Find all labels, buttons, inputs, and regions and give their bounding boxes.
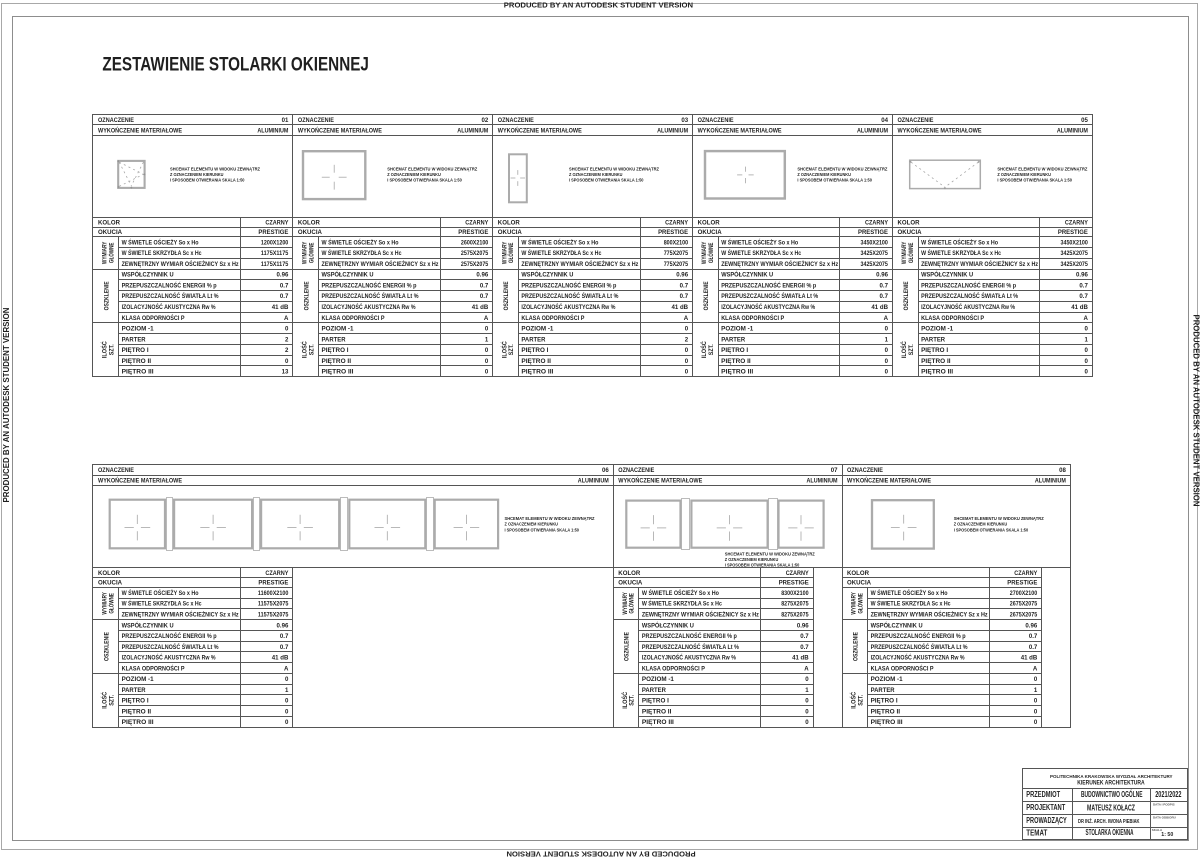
svg-text:1: 50: 1: 50 <box>1161 832 1173 838</box>
svg-text:WYKOŃCZENIE MATERIAŁOWE: WYKOŃCZENIE MATERIAŁOWE <box>298 126 382 134</box>
svg-text:KLASA ODPORNOŚCI P: KLASA ODPORNOŚCI P <box>122 665 185 672</box>
svg-text:1: 1 <box>485 336 489 343</box>
svg-text:POZIOM -1: POZIOM -1 <box>871 676 904 683</box>
svg-text:PARTER: PARTER <box>521 336 546 343</box>
svg-text:IZOLACYJNOŚĆ AKUSTYCZNA Rw %: IZOLACYJNOŚĆ AKUSTYCZNA Rw % <box>322 303 416 311</box>
svg-text:1200X1200: 1200X1200 <box>261 240 289 247</box>
svg-text:KOLOR: KOLOR <box>698 220 721 227</box>
svg-text:0.7: 0.7 <box>1029 644 1038 651</box>
svg-text:PROWADZĄCY: PROWADZĄCY <box>1026 816 1067 825</box>
svg-text:BUDOWNICTWO OGÓLNE: BUDOWNICTWO OGÓLNE <box>1081 790 1143 799</box>
svg-text:PRZEPUSZCZALNOŚĆ ENERGII % p: PRZEPUSZCZALNOŚĆ ENERGII % p <box>642 632 737 640</box>
svg-text:0.96: 0.96 <box>277 622 289 629</box>
svg-text:PRESTIGE: PRESTIGE <box>858 229 888 236</box>
svg-text:PIĘTRO I: PIĘTRO I <box>721 347 748 354</box>
svg-text:3425X2075: 3425X2075 <box>861 261 889 268</box>
svg-text:2575X2075: 2575X2075 <box>461 261 489 268</box>
svg-text:SZT.: SZT. <box>109 344 115 355</box>
svg-text:PIĘTRO II: PIĘTRO II <box>521 358 551 365</box>
svg-text:PROJEKTANT: PROJEKTANT <box>1026 803 1065 812</box>
svg-text:W ŚWIETLE SKRZYDŁA Sc x Hc: W ŚWIETLE SKRZYDŁA Sc x Hc <box>322 250 403 257</box>
svg-text:PIĘTRO I: PIĘTRO I <box>322 347 349 354</box>
svg-text:A: A <box>1033 665 1038 672</box>
svg-text:0.96: 0.96 <box>277 272 289 279</box>
svg-text:PIĘTRO I: PIĘTRO I <box>122 347 149 354</box>
svg-text:PRZEPUSZCZALNOŚĆ ENERGII % p: PRZEPUSZCZALNOŚĆ ENERGII % p <box>721 282 816 290</box>
svg-text:OZNACZENIE: OZNACZENIE <box>498 117 534 124</box>
svg-text:ZEWNĘTRZNY WYMIAR OŚCIEŻNICY S: ZEWNĘTRZNY WYMIAR OŚCIEŻNICY Sz x Hz <box>871 612 988 619</box>
svg-text:Z OZNACZENIEM KIERUNKU: Z OZNACZENIEM KIERUNKU <box>725 557 779 562</box>
svg-text:PIĘTRO I: PIĘTRO I <box>921 347 948 354</box>
svg-text:PIĘTRO II: PIĘTRO II <box>721 358 751 365</box>
svg-text:SHCEMAT ELEMENTU W WIDOKU ZEWN: SHCEMAT ELEMENTU W WIDOKU ZEWNĄTRZ <box>997 166 1087 171</box>
svg-text:PRESTIGE: PRESTIGE <box>1058 229 1088 236</box>
svg-text:OZNACZENIE: OZNACZENIE <box>847 467 883 474</box>
svg-text:1175X1175: 1175X1175 <box>261 250 289 257</box>
svg-text:ILOŚĆ: ILOŚĆ <box>700 341 708 359</box>
svg-text:06: 06 <box>602 467 609 474</box>
svg-text:PRZEPUSZCZALNOŚĆ ŚWIATŁA Lt %: PRZEPUSZCZALNOŚĆ ŚWIATŁA Lt % <box>721 292 819 300</box>
svg-text:W ŚWIETLE OŚCIEŻY So x Ho: W ŚWIETLE OŚCIEŻY So x Ho <box>721 240 798 247</box>
svg-text:Z OZNACZENIEM KIERUNKU: Z OZNACZENIEM KIERUNKU <box>170 172 224 177</box>
svg-text:OKUCIA: OKUCIA <box>98 229 123 236</box>
svg-text:PARTER: PARTER <box>642 687 667 694</box>
svg-text:0.7: 0.7 <box>680 293 689 300</box>
svg-text:0: 0 <box>1034 676 1038 683</box>
svg-text:KIERUNEK ARCHITEKTURA: KIERUNEK ARCHITEKTURA <box>1077 780 1145 787</box>
svg-text:41 dB: 41 dB <box>1071 304 1088 311</box>
svg-text:41 dB: 41 dB <box>792 655 809 662</box>
svg-text:41 dB: 41 dB <box>671 304 688 311</box>
svg-text:WSPÓŁCZYNNIK U: WSPÓŁCZYNNIK U <box>871 621 924 629</box>
svg-text:41 dB: 41 dB <box>871 304 888 311</box>
svg-text:2700X2100: 2700X2100 <box>1010 590 1038 597</box>
svg-text:ILOŚĆ: ILOŚĆ <box>500 341 508 359</box>
svg-text:OZNACZENIE: OZNACZENIE <box>98 117 134 124</box>
svg-text:CZARNY: CZARNY <box>1065 220 1088 227</box>
svg-text:2600X2100: 2600X2100 <box>461 240 489 247</box>
svg-text:SZT.: SZT. <box>709 344 715 355</box>
svg-text:03: 03 <box>681 117 688 124</box>
svg-text:W ŚWIETLE OŚCIEŻY So x Ho: W ŚWIETLE OŚCIEŻY So x Ho <box>122 240 199 247</box>
svg-text:PRZEDMIOT: PRZEDMIOT <box>1026 790 1060 799</box>
svg-text:PIĘTRO I: PIĘTRO I <box>871 698 898 705</box>
svg-text:W ŚWIETLE OŚCIEŻY So x Ho: W ŚWIETLE OŚCIEŻY So x Ho <box>921 240 998 247</box>
svg-text:PIĘTRO III: PIĘTRO III <box>122 369 154 376</box>
svg-text:KLASA ODPORNOŚCI P: KLASA ODPORNOŚCI P <box>521 315 584 322</box>
svg-text:Z OZNACZENIEM KIERUNKU: Z OZNACZENIEM KIERUNKU <box>387 172 441 177</box>
svg-text:0.7: 0.7 <box>800 644 809 651</box>
svg-text:KOLOR: KOLOR <box>618 570 641 577</box>
svg-text:PRZEPUSZCZALNOŚĆ ŚWIATŁA Lt %: PRZEPUSZCZALNOŚĆ ŚWIATŁA Lt % <box>921 292 1019 300</box>
svg-text:WYKOŃCZENIE MATERIAŁOWE: WYKOŃCZENIE MATERIAŁOWE <box>498 126 582 134</box>
svg-text:01: 01 <box>282 117 289 124</box>
svg-text:WYKOŃCZENIE MATERIAŁOWE: WYKOŃCZENIE MATERIAŁOWE <box>98 126 182 134</box>
svg-text:WYMIARY: WYMIARY <box>623 592 629 615</box>
svg-text:W ŚWIETLE SKRZYDŁA Sc x Hc: W ŚWIETLE SKRZYDŁA Sc x Hc <box>921 250 1002 257</box>
svg-text:PRODUCED BY AN AUTODESK STUDEN: PRODUCED BY AN AUTODESK STUDENT VERSION <box>504 0 694 9</box>
svg-text:GŁÓWNE: GŁÓWNE <box>628 593 636 614</box>
svg-text:0.7: 0.7 <box>1079 283 1088 290</box>
svg-text:ALUMINIUM: ALUMINIUM <box>807 478 838 485</box>
svg-text:2575X2075: 2575X2075 <box>461 250 489 257</box>
svg-text:PARTER: PARTER <box>322 336 347 343</box>
svg-text:CZARNY: CZARNY <box>786 570 809 577</box>
svg-text:ZEWNĘTRZNY WYMIAR OŚCIEŻNICY S: ZEWNĘTRZNY WYMIAR OŚCIEŻNICY Sz x Hz <box>642 612 759 619</box>
svg-text:0.7: 0.7 <box>680 283 689 290</box>
svg-text:PRZEPUSZCZALNOŚĆ ENERGII % p: PRZEPUSZCZALNOŚĆ ENERGII % p <box>122 632 217 640</box>
svg-text:WYMIARY: WYMIARY <box>103 242 109 265</box>
svg-text:SZT.: SZT. <box>309 344 315 355</box>
svg-text:WSPÓŁCZYNNIK U: WSPÓŁCZYNNIK U <box>921 271 974 279</box>
svg-text:WYMIARY: WYMIARY <box>702 242 708 265</box>
svg-text:11575X2075: 11575X2075 <box>258 612 289 619</box>
svg-text:PRZEPUSZCZALNOŚĆ ŚWIATŁA Lt %: PRZEPUSZCZALNOŚĆ ŚWIATŁA Lt % <box>871 643 969 651</box>
svg-text:0: 0 <box>485 326 489 333</box>
svg-text:POZIOM -1: POZIOM -1 <box>122 326 155 333</box>
svg-text:2675X2075: 2675X2075 <box>1010 601 1038 608</box>
svg-text:PIĘTRO II: PIĘTRO II <box>122 708 152 715</box>
svg-text:GŁÓWNE: GŁÓWNE <box>907 243 915 264</box>
svg-text:OKUCIA: OKUCIA <box>618 580 643 587</box>
svg-text:PIĘTRO II: PIĘTRO II <box>322 358 352 365</box>
svg-text:41 dB: 41 dB <box>272 304 289 311</box>
svg-text:SHCEMAT ELEMENTU W WIDOKU ZEWN: SHCEMAT ELEMENTU W WIDOKU ZEWNĄTRZ <box>725 551 815 556</box>
svg-text:POZIOM -1: POZIOM -1 <box>521 326 554 333</box>
svg-text:PIĘTRO III: PIĘTRO III <box>921 369 953 376</box>
svg-text:GŁÓWNE: GŁÓWNE <box>507 243 515 264</box>
svg-text:8275X2075: 8275X2075 <box>781 601 809 608</box>
svg-text:MATEUSZ KOŁACZ: MATEUSZ KOŁACZ <box>1087 803 1135 812</box>
svg-text:DATA ODBIORU: DATA ODBIORU <box>1153 816 1176 820</box>
svg-text:WSPÓŁCZYNNIK U: WSPÓŁCZYNNIK U <box>521 271 574 279</box>
svg-text:ILOŚĆ: ILOŚĆ <box>900 341 908 359</box>
svg-text:OSZKLENIE: OSZKLENIE <box>104 632 110 661</box>
svg-text:GŁÓWNE: GŁÓWNE <box>707 243 715 264</box>
svg-text:A: A <box>884 315 889 322</box>
svg-text:ILOŚĆ: ILOŚĆ <box>621 691 629 709</box>
svg-text:ALUMINIUM: ALUMINIUM <box>1035 478 1066 485</box>
svg-text:0: 0 <box>485 347 489 354</box>
svg-text:PARTER: PARTER <box>122 687 147 694</box>
svg-text:POZIOM -1: POZIOM -1 <box>322 326 355 333</box>
svg-text:Z OZNACZENIEM KIERUNKU: Z OZNACZENIEM KIERUNKU <box>569 172 623 177</box>
svg-text:A: A <box>484 315 489 322</box>
svg-text:0.7: 0.7 <box>880 283 889 290</box>
svg-text:PRZEPUSZCZALNOŚĆ ŚWIATŁA Lt %: PRZEPUSZCZALNOŚĆ ŚWIATŁA Lt % <box>642 643 740 651</box>
svg-text:05: 05 <box>1081 117 1088 124</box>
svg-text:OKUCIA: OKUCIA <box>298 229 323 236</box>
svg-text:PIĘTRO III: PIĘTRO III <box>322 369 354 376</box>
svg-text:I SPOSOBEM OTWIERANIA SKALA 1:: I SPOSOBEM OTWIERANIA SKALA 1:50 <box>725 563 800 568</box>
svg-text:Z OZNACZENIEM KIERUNKU: Z OZNACZENIEM KIERUNKU <box>505 522 559 527</box>
svg-text:A: A <box>284 665 289 672</box>
svg-text:W ŚWIETLE OŚCIEŻY So x Ho: W ŚWIETLE OŚCIEŻY So x Ho <box>322 240 399 247</box>
svg-text:0.7: 0.7 <box>280 633 289 640</box>
svg-text:DATA I PODPIS: DATA I PODPIS <box>1153 802 1175 806</box>
svg-text:W ŚWIETLE OŚCIEŻY So x Ho: W ŚWIETLE OŚCIEŻY So x Ho <box>521 240 598 247</box>
svg-text:41 dB: 41 dB <box>1021 655 1038 662</box>
svg-text:0.96: 0.96 <box>1025 622 1037 629</box>
svg-text:PRESTIGE: PRESTIGE <box>1007 580 1037 587</box>
svg-text:A: A <box>684 315 689 322</box>
svg-text:PRESTIGE: PRESTIGE <box>779 580 809 587</box>
svg-text:STOLARKA OKIENNA: STOLARKA OKIENNA <box>1086 828 1134 837</box>
svg-text:ZEWNĘTRZNY WYMIAR OŚCIEŻNICY S: ZEWNĘTRZNY WYMIAR OŚCIEŻNICY Sz x Hz <box>721 261 838 268</box>
svg-text:CZARNY: CZARNY <box>265 570 288 577</box>
svg-text:W ŚWIETLE SKRZYDŁA Sc x Hc: W ŚWIETLE SKRZYDŁA Sc x Hc <box>122 250 203 257</box>
svg-text:2675X2075: 2675X2075 <box>1010 612 1038 619</box>
svg-text:08: 08 <box>1059 467 1066 474</box>
svg-text:KLASA ODPORNOŚCI P: KLASA ODPORNOŚCI P <box>642 665 705 672</box>
svg-text:OZNACZENIE: OZNACZENIE <box>698 117 734 124</box>
svg-text:PIĘTRO I: PIĘTRO I <box>521 347 548 354</box>
svg-text:0.7: 0.7 <box>280 283 289 290</box>
svg-text:CZARNY: CZARNY <box>865 220 888 227</box>
svg-text:04: 04 <box>881 117 888 124</box>
svg-text:A: A <box>804 665 809 672</box>
svg-text:POZIOM -1: POZIOM -1 <box>921 326 954 333</box>
svg-text:PRESTIGE: PRESTIGE <box>458 229 488 236</box>
svg-text:W ŚWIETLE SKRZYDŁA Sc x Hc: W ŚWIETLE SKRZYDŁA Sc x Hc <box>721 250 802 257</box>
svg-text:0.7: 0.7 <box>1079 293 1088 300</box>
svg-text:1: 1 <box>1034 687 1038 694</box>
svg-text:IZOLACYJNOŚĆ AKUSTYCZNA Rw %: IZOLACYJNOŚĆ AKUSTYCZNA Rw % <box>642 654 736 662</box>
svg-text:11575X2075: 11575X2075 <box>258 601 289 608</box>
svg-text:KLASA ODPORNOŚCI P: KLASA ODPORNOŚCI P <box>871 665 934 672</box>
svg-text:I SPOSOBEM OTWIERANIA SKALA 1:: I SPOSOBEM OTWIERANIA SKALA 1:50 <box>505 527 580 532</box>
svg-text:OSZKLENIE: OSZKLENIE <box>625 632 631 661</box>
svg-text:PIĘTRO II: PIĘTRO II <box>122 358 152 365</box>
svg-text:POZIOM -1: POZIOM -1 <box>721 326 754 333</box>
svg-text:OSZKLENIE: OSZKLENIE <box>304 281 310 310</box>
svg-text:ZEWNĘTRZNY WYMIAR OŚCIEŻNICY S: ZEWNĘTRZNY WYMIAR OŚCIEŻNICY Sz x Hz <box>322 261 439 268</box>
svg-text:WYMIARY: WYMIARY <box>103 592 109 615</box>
svg-text:PIĘTRO II: PIĘTRO II <box>871 708 901 715</box>
svg-text:KLASA ODPORNOŚCI P: KLASA ODPORNOŚCI P <box>921 315 984 322</box>
svg-text:IZOLACYJNOŚĆ AKUSTYCZNA Rw %: IZOLACYJNOŚĆ AKUSTYCZNA Rw % <box>122 654 216 662</box>
svg-text:ILOŚĆ: ILOŚĆ <box>850 691 858 709</box>
svg-text:SHCEMAT ELEMENTU W WIDOKU ZEWN: SHCEMAT ELEMENTU W WIDOKU ZEWNĄTRZ <box>387 166 477 171</box>
svg-text:SHCEMAT ELEMENTU W WIDOKU ZEWN: SHCEMAT ELEMENTU W WIDOKU ZEWNĄTRZ <box>569 166 659 171</box>
svg-text:0.7: 0.7 <box>280 293 289 300</box>
svg-text:0: 0 <box>1034 719 1038 726</box>
svg-text:PIĘTRO III: PIĘTRO III <box>521 369 553 376</box>
svg-text:SHCEMAT ELEMENTU W WIDOKU ZEWN: SHCEMAT ELEMENTU W WIDOKU ZEWNĄTRZ <box>797 166 887 171</box>
svg-text:OKUCIA: OKUCIA <box>698 229 723 236</box>
svg-text:OSZKLENIE: OSZKLENIE <box>904 281 910 310</box>
svg-text:SHCEMAT ELEMENTU W WIDOKU ZEWN: SHCEMAT ELEMENTU W WIDOKU ZEWNĄTRZ <box>170 166 260 171</box>
svg-text:PIĘTRO II: PIĘTRO II <box>921 358 951 365</box>
svg-text:775X2075: 775X2075 <box>664 250 689 257</box>
svg-text:W ŚWIETLE OŚCIEŻY So x Ho: W ŚWIETLE OŚCIEŻY So x Ho <box>871 590 948 597</box>
svg-text:WYKOŃCZENIE MATERIAŁOWE: WYKOŃCZENIE MATERIAŁOWE <box>847 477 931 485</box>
svg-text:PRZEPUSZCZALNOŚĆ ENERGII % p: PRZEPUSZCZALNOŚĆ ENERGII % p <box>521 282 616 290</box>
svg-text:ILOŚĆ: ILOŚĆ <box>101 691 109 709</box>
svg-text:ZESTAWIENIE STOLARKI OKIENNEJ: ZESTAWIENIE STOLARKI OKIENNEJ <box>102 54 369 76</box>
svg-text:3425X2075: 3425X2075 <box>1061 250 1089 257</box>
svg-text:PIĘTRO I: PIĘTRO I <box>642 698 669 705</box>
svg-text:8300X2100: 8300X2100 <box>781 590 809 597</box>
svg-text:OKUCIA: OKUCIA <box>498 229 523 236</box>
svg-text:0.7: 0.7 <box>280 644 289 651</box>
svg-text:41 dB: 41 dB <box>272 655 289 662</box>
svg-text:WYMIARY: WYMIARY <box>302 242 308 265</box>
svg-text:PIĘTRO III: PIĘTRO III <box>642 719 674 726</box>
svg-text:PIĘTRO III: PIĘTRO III <box>721 369 753 376</box>
svg-text:PRODUCED BY AN AUTODESK STUDEN: PRODUCED BY AN AUTODESK STUDENT VERSION <box>506 849 696 857</box>
svg-text:GŁÓWNE: GŁÓWNE <box>107 593 115 614</box>
svg-text:3450X2100: 3450X2100 <box>861 240 889 247</box>
svg-text:WYMIARY: WYMIARY <box>852 592 858 615</box>
svg-text:Z OZNACZENIEM KIERUNKU: Z OZNACZENIEM KIERUNKU <box>797 172 851 177</box>
svg-text:WYKOŃCZENIE MATERIAŁOWE: WYKOŃCZENIE MATERIAŁOWE <box>698 126 782 134</box>
svg-text:0: 0 <box>485 369 489 376</box>
svg-text:KLASA ODPORNOŚCI P: KLASA ODPORNOŚCI P <box>721 315 784 322</box>
svg-text:Z OZNACZENIEM KIERUNKU: Z OZNACZENIEM KIERUNKU <box>954 522 1008 527</box>
svg-text:PIĘTRO II: PIĘTRO II <box>642 708 672 715</box>
svg-text:WSPÓŁCZYNNIK U: WSPÓŁCZYNNIK U <box>122 621 175 629</box>
svg-text:OSZKLENIE: OSZKLENIE <box>853 632 859 661</box>
svg-text:0: 0 <box>1034 698 1038 705</box>
svg-text:IZOLACYJNOŚĆ AKUSTYCZNA Rw %: IZOLACYJNOŚĆ AKUSTYCZNA Rw % <box>871 654 965 662</box>
svg-text:I SPOSOBEM OTWIERANIA SKALA 1:: I SPOSOBEM OTWIERANIA SKALA 1:50 <box>997 178 1072 183</box>
svg-text:PRZEPUSZCZALNOŚĆ ŚWIATŁA Lt %: PRZEPUSZCZALNOŚĆ ŚWIATŁA Lt % <box>322 292 420 300</box>
svg-text:PRZEPUSZCZALNOŚĆ ŚWIATŁA Lt %: PRZEPUSZCZALNOŚĆ ŚWIATŁA Lt % <box>122 643 220 651</box>
svg-text:OZNACZENIE: OZNACZENIE <box>618 467 654 474</box>
svg-text:0: 0 <box>485 358 489 365</box>
svg-text:CZARNY: CZARNY <box>665 220 688 227</box>
svg-text:0.7: 0.7 <box>480 293 489 300</box>
svg-text:CZARNY: CZARNY <box>465 220 488 227</box>
svg-text:IZOLACYJNOŚĆ AKUSTYCZNA Rw %: IZOLACYJNOŚĆ AKUSTYCZNA Rw % <box>521 303 615 311</box>
svg-text:SHCEMAT ELEMENTU W WIDOKU ZEWN: SHCEMAT ELEMENTU W WIDOKU ZEWNĄTRZ <box>505 516 595 521</box>
svg-text:0.96: 0.96 <box>876 272 888 279</box>
svg-text:GŁÓWNE: GŁÓWNE <box>307 243 315 264</box>
svg-text:2021/2022: 2021/2022 <box>1155 790 1182 799</box>
svg-text:A: A <box>284 315 289 322</box>
svg-text:PRESTIGE: PRESTIGE <box>658 229 688 236</box>
svg-text:OZNACZENIE: OZNACZENIE <box>298 117 334 124</box>
svg-text:GŁÓWNE: GŁÓWNE <box>856 593 864 614</box>
svg-text:SHCEMAT ELEMENTU W WIDOKU ZEWN: SHCEMAT ELEMENTU W WIDOKU ZEWNĄTRZ <box>954 516 1044 521</box>
svg-text:02: 02 <box>482 117 489 124</box>
svg-text:KOLOR: KOLOR <box>98 570 121 577</box>
svg-text:PRZEPUSZCZALNOŚĆ ENERGII % p: PRZEPUSZCZALNOŚĆ ENERGII % p <box>871 632 966 640</box>
svg-text:KOLOR: KOLOR <box>847 570 870 577</box>
svg-text:OZNACZENIE: OZNACZENIE <box>98 467 134 474</box>
svg-text:SZT.: SZT. <box>858 695 864 706</box>
svg-text:I SPOSOBEM OTWIERANIA SKALA 1:: I SPOSOBEM OTWIERANIA SKALA 1:50 <box>797 178 872 183</box>
svg-text:0.7: 0.7 <box>800 633 809 640</box>
svg-text:8275X2075: 8275X2075 <box>781 612 809 619</box>
svg-text:13: 13 <box>282 369 289 376</box>
svg-text:ALUMINIUM: ALUMINIUM <box>857 127 888 134</box>
svg-text:I SPOSOBEM OTWIERANIA SKALA 1:: I SPOSOBEM OTWIERANIA SKALA 1:50 <box>387 178 462 183</box>
svg-text:WYMIARY: WYMIARY <box>502 242 508 265</box>
svg-text:ZEWNĘTRZNY WYMIAR OŚCIEŻNICY S: ZEWNĘTRZNY WYMIAR OŚCIEŻNICY Sz x Hz <box>122 261 239 268</box>
svg-text:PRZEPUSZCZALNOŚĆ ŚWIATŁA Lt %: PRZEPUSZCZALNOŚĆ ŚWIATŁA Lt % <box>122 292 220 300</box>
svg-text:0: 0 <box>1034 708 1038 715</box>
svg-text:0.96: 0.96 <box>676 272 688 279</box>
svg-text:OKUCIA: OKUCIA <box>847 580 872 587</box>
svg-text:PARTER: PARTER <box>122 336 147 343</box>
svg-text:I SPOSOBEM OTWIERANIA SKALA 1:: I SPOSOBEM OTWIERANIA SKALA 1:50 <box>569 178 644 183</box>
svg-text:TEMAT: TEMAT <box>1026 828 1047 837</box>
svg-text:W ŚWIETLE OŚCIEŻY So x Ho: W ŚWIETLE OŚCIEŻY So x Ho <box>122 590 199 597</box>
svg-text:KLASA ODPORNOŚCI P: KLASA ODPORNOŚCI P <box>322 315 385 322</box>
svg-text:OKUCIA: OKUCIA <box>98 580 123 587</box>
svg-text:KOLOR: KOLOR <box>898 220 921 227</box>
svg-text:DR INŻ. ARCH. IWONA PIEBIAK: DR INŻ. ARCH. IWONA PIEBIAK <box>1078 818 1140 825</box>
svg-text:I SPOSOBEM OTWIERANIA SKALA 1:: I SPOSOBEM OTWIERANIA SKALA 1:50 <box>170 178 245 183</box>
svg-text:0.96: 0.96 <box>1076 272 1088 279</box>
svg-text:PARTER: PARTER <box>921 336 946 343</box>
svg-text:PRODUCED BY AN AUTODESK STUDEN: PRODUCED BY AN AUTODESK STUDENT VERSION <box>2 307 11 502</box>
svg-text:IZOLACYJNOŚĆ AKUSTYCZNA Rw %: IZOLACYJNOŚĆ AKUSTYCZNA Rw % <box>721 303 815 311</box>
svg-text:41 dB: 41 dB <box>472 304 489 311</box>
svg-text:SZT.: SZT. <box>909 344 915 355</box>
svg-text:0.96: 0.96 <box>797 622 809 629</box>
svg-text:800X2100: 800X2100 <box>664 240 689 247</box>
svg-text:WYKOŃCZENIE MATERIAŁOWE: WYKOŃCZENIE MATERIAŁOWE <box>898 126 982 134</box>
svg-text:PRZEPUSZCZALNOŚĆ ENERGII % p: PRZEPUSZCZALNOŚĆ ENERGII % p <box>322 282 417 290</box>
svg-text:775X2075: 775X2075 <box>664 261 689 268</box>
svg-text:W ŚWIETLE SKRZYDŁA Sc x Hc: W ŚWIETLE SKRZYDŁA Sc x Hc <box>642 601 723 608</box>
svg-text:IZOLACYJNOŚĆ AKUSTYCZNA Rw %: IZOLACYJNOŚĆ AKUSTYCZNA Rw % <box>921 303 1015 311</box>
svg-text:CZARNY: CZARNY <box>265 220 288 227</box>
svg-text:OZNACZENIE: OZNACZENIE <box>898 117 934 124</box>
svg-text:PIĘTRO III: PIĘTRO III <box>122 719 154 726</box>
svg-text:ZEWNĘTRZNY WYMIAR OŚCIEŻNICY S: ZEWNĘTRZNY WYMIAR OŚCIEŻNICY Sz x Hz <box>521 261 638 268</box>
svg-text:PIĘTRO I: PIĘTRO I <box>122 698 149 705</box>
svg-text:A: A <box>1083 315 1088 322</box>
svg-text:ILOŚĆ: ILOŚĆ <box>101 341 109 359</box>
svg-text:0.96: 0.96 <box>476 272 488 279</box>
svg-text:PRZEPUSZCZALNOŚĆ ŚWIATŁA Lt %: PRZEPUSZCZALNOŚĆ ŚWIATŁA Lt % <box>521 292 619 300</box>
svg-text:ALUMINIUM: ALUMINIUM <box>657 127 688 134</box>
svg-text:3425X2075: 3425X2075 <box>861 250 889 257</box>
svg-text:PRESTIGE: PRESTIGE <box>258 580 288 587</box>
svg-text:Z OZNACZENIEM KIERUNKU: Z OZNACZENIEM KIERUNKU <box>997 172 1051 177</box>
svg-text:SZT.: SZT. <box>630 695 636 706</box>
svg-text:ALUMINIUM: ALUMINIUM <box>457 127 488 134</box>
svg-text:W ŚWIETLE SKRZYDŁA Sc x Hc: W ŚWIETLE SKRZYDŁA Sc x Hc <box>871 601 952 608</box>
svg-text:OSZKLENIE: OSZKLENIE <box>504 281 510 310</box>
svg-text:PRZEPUSZCZALNOŚĆ ENERGII % p: PRZEPUSZCZALNOŚĆ ENERGII % p <box>921 282 1016 290</box>
svg-text:KOLOR: KOLOR <box>498 220 521 227</box>
svg-text:OSZKLENIE: OSZKLENIE <box>704 281 710 310</box>
svg-text:WSPÓŁCZYNNIK U: WSPÓŁCZYNNIK U <box>322 271 375 279</box>
svg-text:ZEWNĘTRZNY WYMIAR OŚCIEŻNICY S: ZEWNĘTRZNY WYMIAR OŚCIEŻNICY Sz x Hz <box>122 612 239 619</box>
svg-text:KLASA ODPORNOŚCI P: KLASA ODPORNOŚCI P <box>122 315 185 322</box>
svg-text:W ŚWIETLE OŚCIEŻY So x Ho: W ŚWIETLE OŚCIEŻY So x Ho <box>642 590 719 597</box>
svg-text:IZOLACYJNOŚĆ AKUSTYCZNA Rw %: IZOLACYJNOŚĆ AKUSTYCZNA Rw % <box>122 303 216 311</box>
svg-text:3450X2100: 3450X2100 <box>1061 240 1089 247</box>
svg-text:OSZKLENIE: OSZKLENIE <box>104 281 110 310</box>
svg-text:I SPOSOBEM OTWIERANIA SKALA 1:: I SPOSOBEM OTWIERANIA SKALA 1:50 <box>954 527 1029 532</box>
svg-text:PIĘTRO III: PIĘTRO III <box>871 719 903 726</box>
svg-text:CZARNY: CZARNY <box>1014 570 1037 577</box>
svg-text:KOLOR: KOLOR <box>98 220 121 227</box>
svg-text:W ŚWIETLE SKRZYDŁA Sc x Hc: W ŚWIETLE SKRZYDŁA Sc x Hc <box>122 601 203 608</box>
svg-text:SZT.: SZT. <box>109 695 115 706</box>
svg-text:ALUMINIUM: ALUMINIUM <box>1057 127 1088 134</box>
svg-text:WYKOŃCZENIE MATERIAŁOWE: WYKOŃCZENIE MATERIAŁOWE <box>98 477 182 485</box>
svg-text:1175X1175: 1175X1175 <box>261 261 289 268</box>
svg-text:0.7: 0.7 <box>1029 633 1038 640</box>
svg-text:WYMIARY: WYMIARY <box>902 242 908 265</box>
